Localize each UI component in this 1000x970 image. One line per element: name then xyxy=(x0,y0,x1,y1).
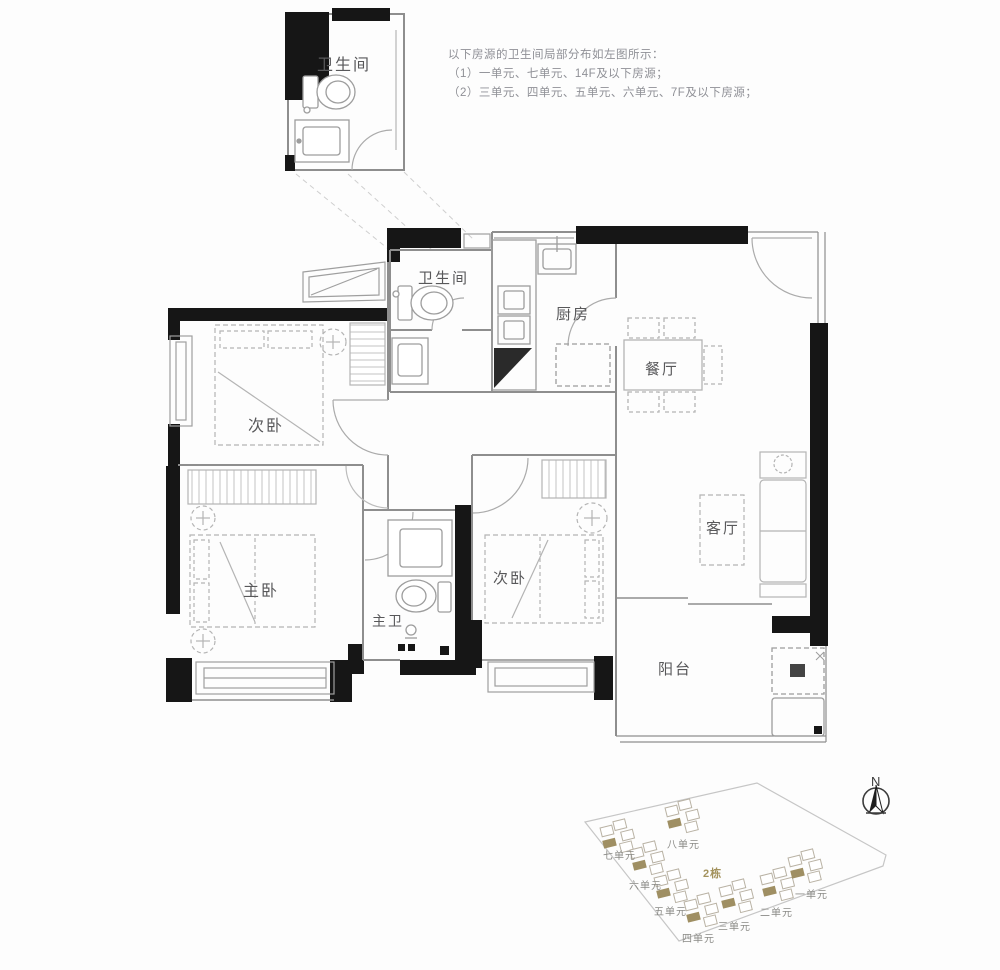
site-unit-label-2: 二单元 xyxy=(760,904,793,919)
room-label-kitchen: 厨房 xyxy=(556,303,590,324)
room-label-living: 客厅 xyxy=(706,517,740,538)
master-bathroom-fixtures xyxy=(388,520,452,655)
building-cluster xyxy=(719,879,753,913)
room-label-master-bedroom: 主卧 xyxy=(243,577,279,601)
bedroom-middle-furniture xyxy=(485,460,607,623)
site-building-label: 2栋 xyxy=(703,865,722,881)
room-label-master-bathroom: 主卫 xyxy=(372,611,404,631)
site-unit-label-6: 六单元 xyxy=(629,877,662,892)
building-cluster xyxy=(788,849,822,883)
room-label-bedroom-middle: 次卧 xyxy=(493,567,527,588)
annotation-line-2: （1）一单元、七单元、14F及以下房源； xyxy=(448,65,757,84)
room-label-dining: 餐厅 xyxy=(645,358,679,379)
site-unit-label-1: 一单元 xyxy=(795,886,828,901)
site-unit-label-3: 三单元 xyxy=(718,918,751,933)
site-unit-label-7: 七单元 xyxy=(603,847,636,862)
master-bedroom-furniture xyxy=(188,470,316,653)
site-unit-label-5: 五单元 xyxy=(654,903,687,918)
site-unit-label-4: 四单元 xyxy=(682,930,715,945)
room-label-bathroom: 卫生间 xyxy=(418,267,469,288)
building-cluster xyxy=(684,893,718,927)
plan-linework xyxy=(0,0,1000,970)
floorplan-page: 卫生间 以下房源的卫生间局部分布如左图所示： （1）一单元、七单元、14F及以下… xyxy=(0,0,1000,970)
site-unit-label-8: 八单元 xyxy=(667,836,700,851)
kitchen-fixtures xyxy=(492,236,610,390)
north-arrow-icon xyxy=(863,785,889,814)
balcony-fixtures xyxy=(772,648,824,736)
building-cluster xyxy=(760,867,794,901)
north-label: N xyxy=(871,774,880,789)
room-label-bedroom-top: 次卧 xyxy=(248,412,284,436)
annotation-line-1: 以下房源的卫生间局部分布如左图所示： xyxy=(448,46,757,65)
bedroom-top-furniture xyxy=(215,323,385,445)
annotation-block: 以下房源的卫生间局部分布如左图所示： （1）一单元、七单元、14F及以下房源； … xyxy=(448,46,757,103)
room-label-balcony: 阳台 xyxy=(658,658,692,679)
annotation-line-3: （2）三单元、四单元、五单元、六单元、7F及以下房源； xyxy=(448,84,757,103)
building-cluster xyxy=(665,799,699,833)
inset-room-label: 卫生间 xyxy=(317,51,371,75)
